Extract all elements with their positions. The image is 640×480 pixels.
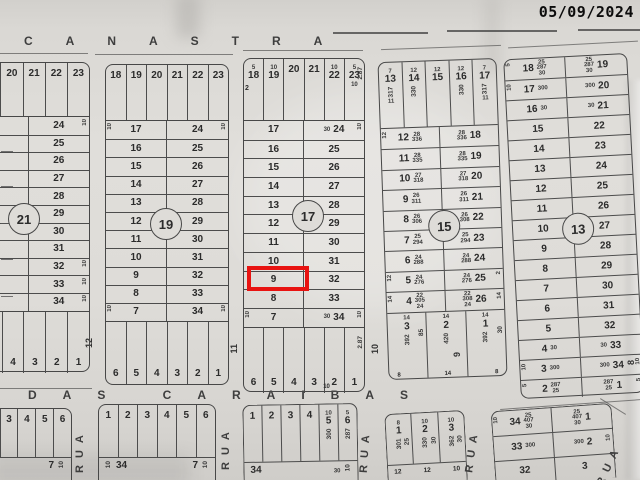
- rua-label: RUA: [358, 407, 375, 474]
- street-name-das-caraibas: DAS CARAIBAS: [28, 388, 434, 402]
- lot-cell: 21: [167, 65, 188, 120]
- lot-cell: 1019: [263, 59, 283, 120]
- lot-line-stub: [1, 296, 13, 297]
- bottom-block-b: 123456 10 34 7 10: [98, 404, 216, 480]
- bottom-block-d: 81301251023303010336230 121210: [384, 410, 468, 480]
- lot-cell: 20: [0, 63, 22, 116]
- lot-line-stub: [1, 259, 13, 260]
- lot-cell: 4: [299, 405, 319, 461]
- lot-line-stub: [1, 186, 13, 187]
- lot-cell: 1214330: [401, 62, 427, 128]
- lot-row: 27: [0, 170, 89, 188]
- rua-label: RUA: [463, 403, 485, 474]
- lot-row: 25: [0, 135, 89, 153]
- lot-cell: 4: [17, 409, 35, 457]
- lot-cell: 4: [2, 312, 24, 373]
- lot-cell: 2: [118, 405, 138, 457]
- block-15: 7133171112143301215121633071731711 12 12…: [377, 58, 507, 380]
- lot-cell: 56287: [337, 404, 357, 460]
- lot-cell: 1: [99, 405, 118, 457]
- lot-cell: 22: [45, 63, 67, 116]
- bottom-block-a-lots: 3456: [0, 409, 71, 457]
- scanned-cadastral-map: 05/09/2024 CANASTRA DAS CARAIBAS 12 11 1…: [0, 0, 640, 480]
- lot-cell: 3: [0, 409, 17, 457]
- lot-cell: 6: [53, 409, 71, 457]
- bottom-block-a-row2: 7 10: [0, 457, 71, 480]
- lot-row: 9 32: [106, 267, 228, 285]
- block-13: 5 1825 287 30 25 287 3019 10 17300 30020…: [503, 53, 640, 399]
- lot-cell: 10233030: [411, 412, 440, 463]
- dimension-note: 2: [245, 85, 249, 92]
- lot-cell: 21: [23, 63, 45, 116]
- lot-cell: 4: [146, 322, 167, 384]
- lot-row: 10 7 34 10: [106, 303, 228, 321]
- lot-cell: 3: [137, 405, 157, 457]
- street-line: [243, 50, 363, 51]
- street-name-canastra: CANASTRA: [24, 34, 355, 48]
- lot-cell: 1022: [324, 59, 344, 120]
- lot-cell: 3: [23, 312, 45, 373]
- lot-cell: 1: [208, 322, 229, 384]
- lot-line-stub: [1, 151, 13, 152]
- rua-label: RUA: [220, 404, 232, 470]
- lot-cell: 5: [263, 328, 283, 393]
- lot-cell: 6: [244, 328, 263, 393]
- lot-cell: 3: [280, 405, 300, 461]
- bottom-block-c-lots: 123410530056287: [243, 404, 357, 462]
- lot-row: 32 10: [0, 258, 89, 276]
- lot-cell: 14339285: [387, 313, 428, 379]
- lot-cell: 20: [283, 59, 303, 120]
- lot-cell: 1215: [425, 61, 451, 127]
- rua-label: RUA: [74, 407, 86, 473]
- lot-cell: 71731711: [472, 59, 498, 125]
- block21-top-lots: 20212223: [0, 63, 89, 117]
- street-line: [95, 54, 233, 55]
- lot-row: 17 3024 10: [244, 121, 364, 140]
- lot-cell: 23: [208, 65, 229, 120]
- bottom-block-d-lots: 81301251023303010336230: [385, 411, 466, 465]
- lot-row: 11 30: [244, 233, 364, 252]
- block17-top-lots: 518101920211022523102.87: [244, 59, 364, 121]
- block-number-circle: 17: [292, 200, 324, 232]
- lot-cell: 6: [196, 405, 216, 457]
- lot-cell: 23: [67, 63, 89, 116]
- street-line: [508, 41, 638, 49]
- lot-row: 10 17 24 10: [106, 121, 228, 139]
- lot-cell: 14139230: [465, 310, 507, 376]
- lot-cell: 8130125: [385, 414, 413, 465]
- block-17: 518101920211022523102.87 2 17 3024 10 16…: [243, 58, 365, 392]
- lot-cell: 20: [146, 65, 167, 120]
- lot-cell: 19: [126, 65, 147, 120]
- lot-cell: 71331711: [379, 62, 404, 128]
- date-stamp: 05/09/2024: [539, 3, 634, 21]
- block17-bottom-lots: 6543212.87: [244, 327, 364, 393]
- lot-cell: 21: [304, 59, 324, 120]
- lot-cell: 1: [67, 312, 89, 373]
- dimension-note: 10: [323, 384, 330, 390]
- lot-cell: 2: [45, 312, 67, 373]
- lot-row: 16 25: [244, 140, 364, 159]
- street-line: [381, 45, 501, 50]
- lot-row: 24 10: [0, 117, 89, 135]
- street-line: [578, 29, 640, 31]
- lot-row: 34 10: [0, 293, 89, 311]
- street-line: [0, 53, 88, 54]
- lot-row: 15 26: [244, 158, 364, 177]
- lot-row: 14 27: [244, 177, 364, 196]
- street-line: [447, 30, 557, 32]
- block-number-circle: 19: [150, 208, 182, 240]
- bottom-block-d-row2: 121210: [388, 461, 467, 480]
- lot-row: 8 33: [106, 285, 228, 303]
- bottom-block-a: 3456 7 10: [0, 408, 72, 480]
- street-line: [333, 32, 428, 34]
- block15-bottom-lots: 1433928514242014139230: [387, 309, 506, 379]
- lot-row: 33 10: [0, 275, 89, 293]
- lot-row: 10 31: [106, 248, 228, 266]
- block19-top-lots: 181920212223: [106, 65, 228, 121]
- block19-bottom-lots: 654321: [106, 321, 228, 384]
- lot-cell: 5: [35, 409, 53, 457]
- lot-cell: 1: [243, 406, 262, 462]
- lot-row: 16 25: [106, 139, 228, 157]
- block15-top-lots: 7133171112143301215121633071731711: [379, 59, 498, 129]
- scan-shadow: [176, 0, 200, 38]
- lot-row: 10 7 3034 10: [244, 308, 364, 327]
- block-21: 20212223 24 10 25 26 27: [0, 62, 90, 372]
- bottom-block-b-row2: 10 34 7 10: [99, 457, 215, 480]
- lot-row: 28: [0, 187, 89, 205]
- lot-cell: 6: [106, 322, 126, 384]
- bottom-block-c-row2: 34 30 10: [244, 460, 357, 480]
- block-number-circle: 21: [8, 203, 40, 235]
- bottom-block-e: 10 3425 407 30 25 407 301 33300 3002 10 …: [491, 403, 617, 480]
- block-19: 181920212223 10 17 24 10 16 25 15 26 14: [105, 64, 229, 385]
- lot-row: 15 26: [106, 157, 228, 175]
- bottom-block-b-lots: 123456: [99, 405, 215, 457]
- street-line: [0, 388, 92, 389]
- lot-cell: 4: [283, 328, 303, 393]
- lot-cell: 142420: [426, 311, 468, 377]
- lot-cell: 10336230: [437, 411, 466, 462]
- lot-cell: 18: [106, 65, 126, 120]
- lot-cell: 3: [304, 328, 324, 393]
- lot-cell: 523102.87: [344, 59, 364, 120]
- bottom-block-c: 123410530056287 34 30 10: [242, 403, 358, 480]
- lot-cell: 5: [176, 405, 196, 457]
- lot-cell: 5: [126, 322, 147, 384]
- block21-bottom-lots: 4321: [0, 311, 89, 373]
- rua-number-10: 10: [370, 344, 380, 354]
- lot-cell: 105300: [318, 404, 338, 460]
- lot-cell: 1216330: [448, 60, 474, 126]
- highlight-box-lot-9: [247, 266, 309, 291]
- bottom-block-e-rows: 10 3425 407 30 25 407 301 33300 3002 10 …: [492, 404, 616, 480]
- lot-cell: 4: [157, 405, 177, 457]
- lot-cell: 12.87: [344, 328, 364, 393]
- lot-cell: 22: [187, 65, 208, 120]
- lot-row: 31: [0, 240, 89, 258]
- lot-cell: 2: [187, 322, 208, 384]
- lot-row: 14 27: [106, 176, 228, 194]
- lot-row: 8 33: [244, 289, 364, 308]
- lot-cell: 2: [261, 405, 281, 461]
- lot-row: 26: [0, 152, 89, 170]
- lot-cell: 3: [167, 322, 188, 384]
- rua-number-11: 11: [229, 344, 239, 354]
